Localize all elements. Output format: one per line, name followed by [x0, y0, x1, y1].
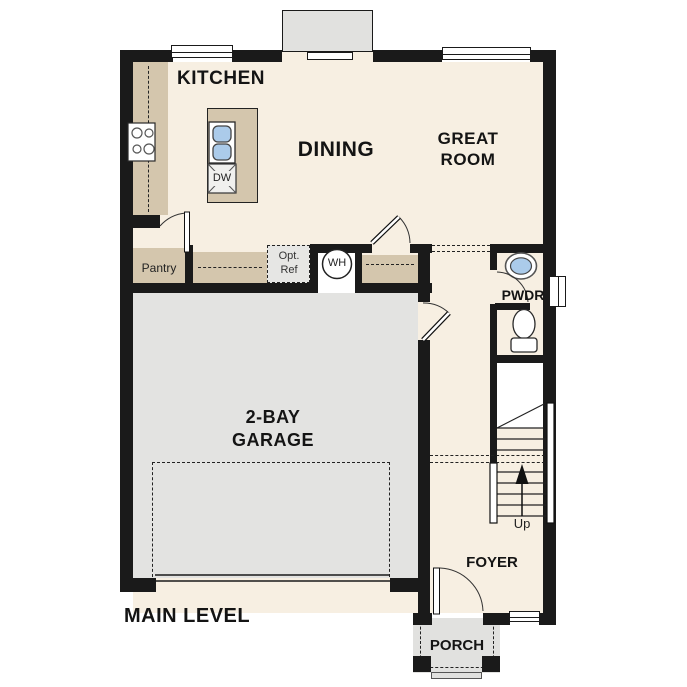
water-heater-label: WH — [322, 257, 352, 271]
garage-entry-door — [423, 303, 449, 340]
stair-rail-right — [547, 403, 554, 523]
front-door — [434, 568, 484, 614]
pantry-label: Pantry — [134, 261, 184, 276]
dishwasher-label: DW — [207, 172, 237, 186]
fixtures-layer — [0, 0, 687, 687]
foyer-label: FOYER — [458, 554, 526, 573]
island-sink-icon — [209, 122, 235, 163]
stair-rail-left — [490, 463, 497, 523]
toilet-icon — [511, 310, 537, 353]
dining-hall-door — [372, 217, 410, 243]
pwdr-label: PWDR — [496, 287, 550, 305]
dining-label: DINING — [286, 137, 386, 163]
garage-label: 2-BAY GARAGE — [218, 406, 328, 451]
pantry-door — [160, 212, 190, 252]
great-room-label: GREAT ROOM — [424, 128, 512, 171]
optional-ref-label: Opt. Ref — [271, 249, 307, 278]
stove-icon — [128, 123, 155, 161]
garage-door — [155, 575, 390, 581]
porch-label: PORCH — [420, 637, 494, 656]
up-label: Up — [505, 516, 539, 532]
floor-plan: KITCHEN DINING GREAT ROOM 2-BAY GARAGE P… — [0, 0, 687, 687]
main-level-title: MAIN LEVEL — [124, 604, 324, 629]
kitchen-label: KITCHEN — [173, 67, 269, 91]
